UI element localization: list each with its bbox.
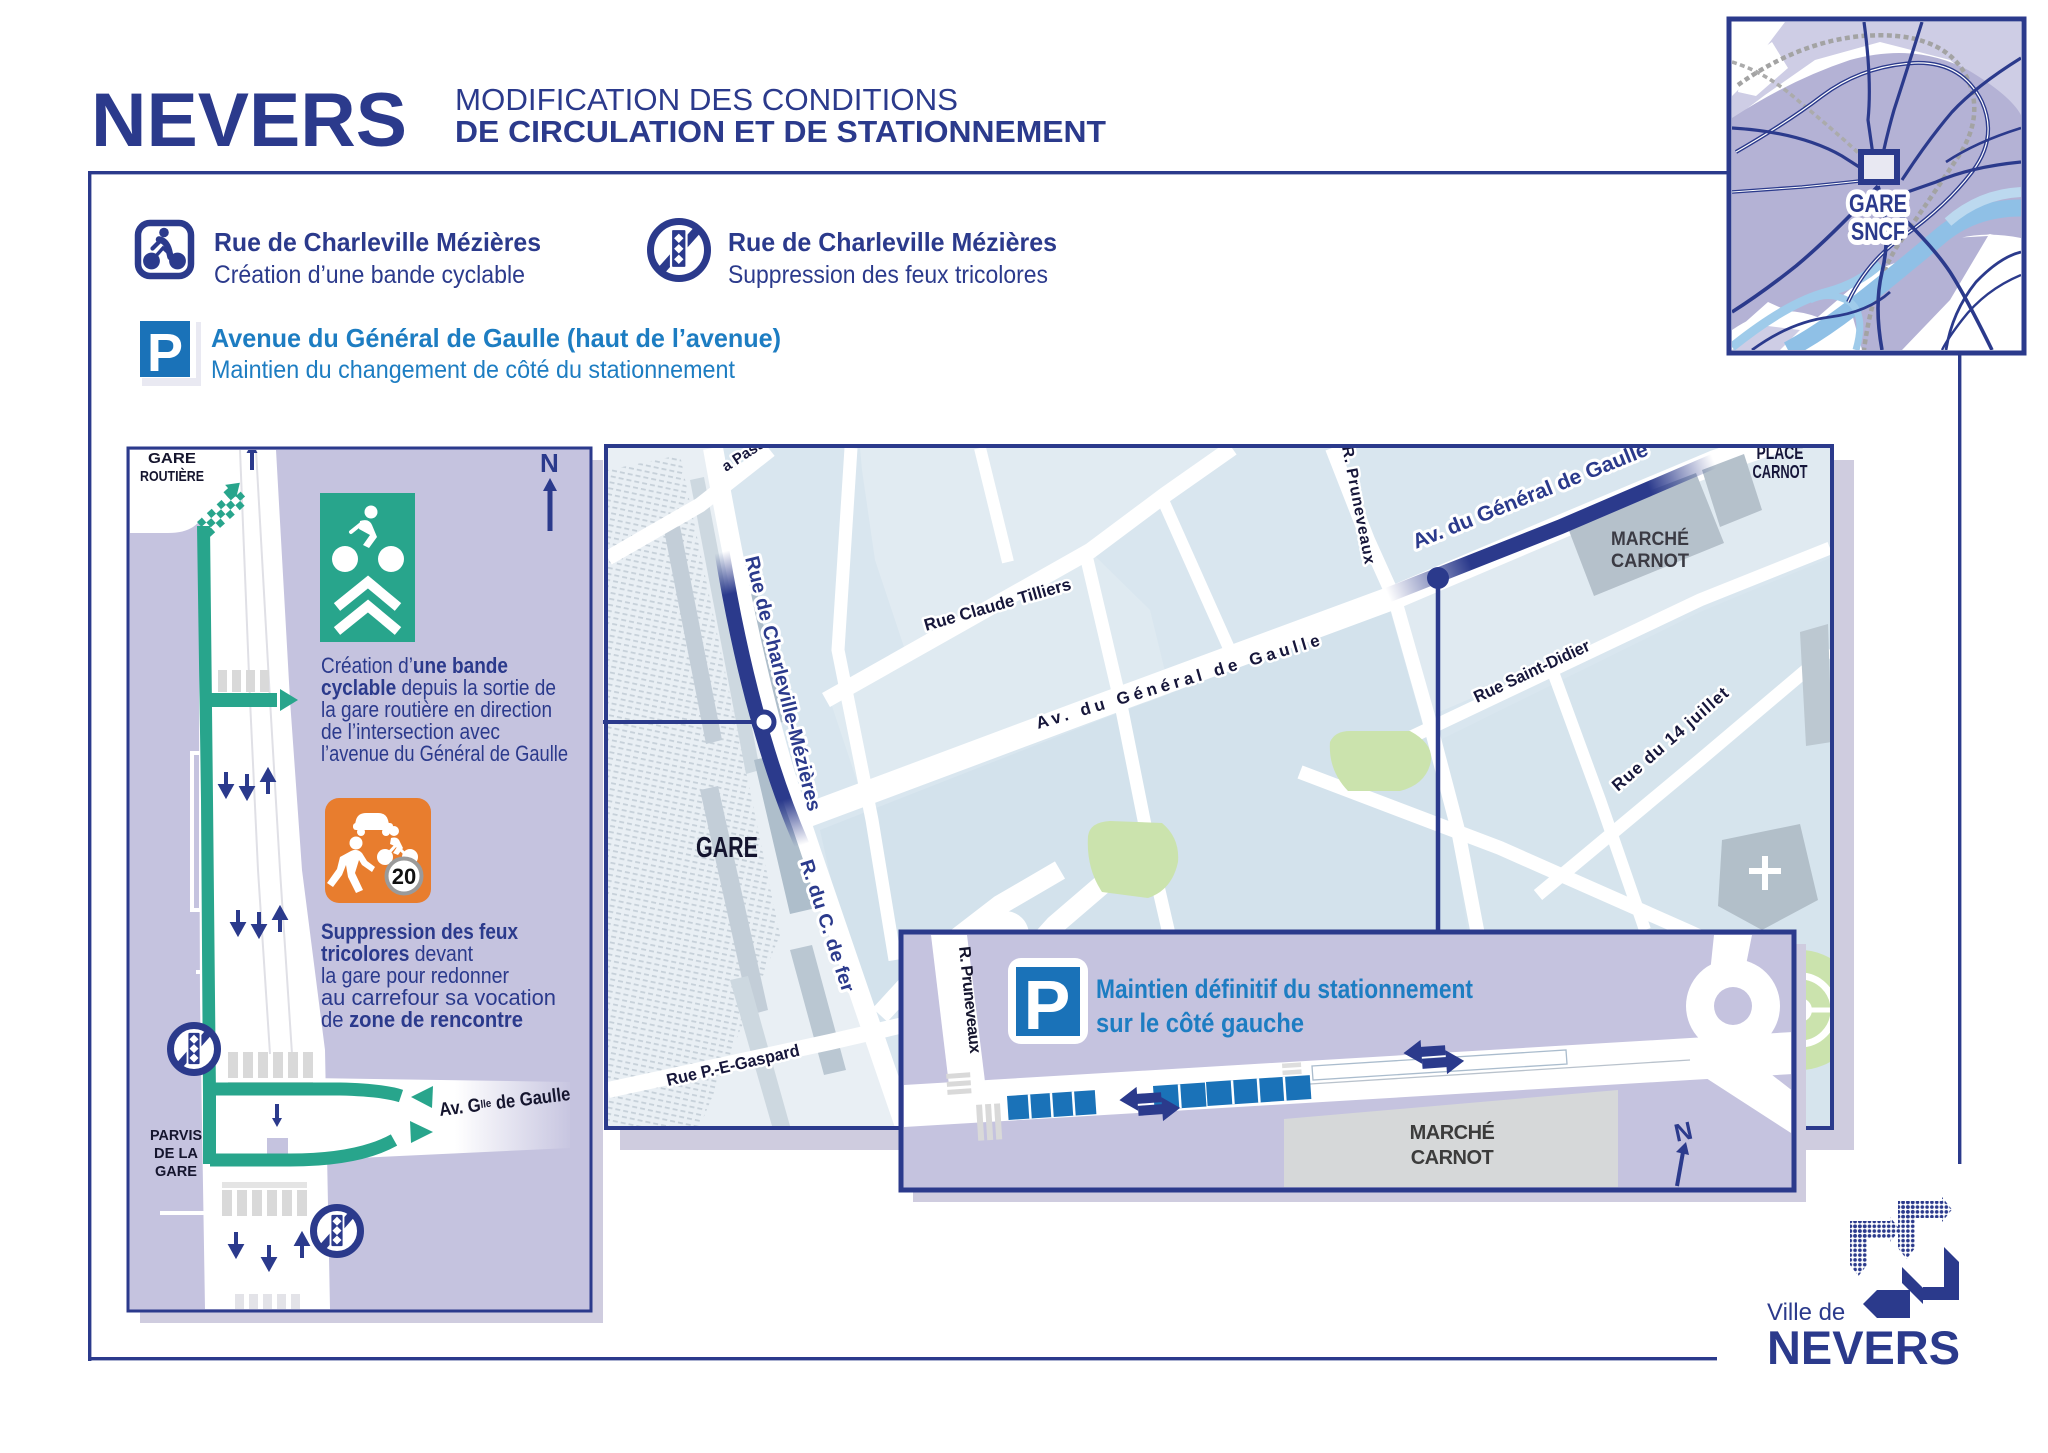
svg-text:P: P bbox=[1024, 966, 1071, 1044]
svg-text:CARNOT: CARNOT bbox=[1611, 551, 1689, 572]
svg-text:NEVERS: NEVERS bbox=[1767, 1321, 1960, 1374]
svg-text:GARE: GARE bbox=[155, 1163, 197, 1180]
svg-text:Création d’une bande cyclable: Création d’une bande cyclable bbox=[214, 261, 525, 289]
svg-text:ROUTIÈRE: ROUTIÈRE bbox=[140, 468, 204, 485]
svg-text:Maintien définitif du stationn: Maintien définitif du stationnement bbox=[1096, 974, 1473, 1004]
svg-text:Avenue du Général de Gaulle (h: Avenue du Général de Gaulle (haut de l’a… bbox=[211, 323, 781, 353]
svg-text:Rue de Charleville Mézières: Rue de Charleville Mézières bbox=[214, 227, 541, 257]
svg-text:Suppression des feux tricolore: Suppression des feux tricolores bbox=[728, 261, 1048, 289]
svg-text:de zone de rencontre: de zone de rencontre bbox=[321, 1007, 523, 1032]
svg-text:CARNOT: CARNOT bbox=[1753, 462, 1808, 482]
svg-text:sur le côté gauche: sur le côté gauche bbox=[1096, 1008, 1304, 1038]
svg-text:Maintien du changement de côté: Maintien du changement de côté du statio… bbox=[211, 356, 735, 384]
svg-text:MODIFICATION DES CONDITIONS: MODIFICATION DES CONDITIONS bbox=[455, 82, 958, 117]
svg-text:GARE: GARE bbox=[1849, 190, 1907, 218]
svg-text:CARNOT: CARNOT bbox=[1411, 1147, 1494, 1169]
svg-text:l’avenue du Général de Gaulle: l’avenue du Général de Gaulle bbox=[321, 741, 568, 766]
svg-text:MARCHÉ: MARCHÉ bbox=[1410, 1121, 1495, 1144]
svg-text:GARE: GARE bbox=[148, 450, 196, 467]
svg-text:20: 20 bbox=[392, 864, 416, 889]
svg-text:DE CIRCULATION ET DE STATIONNE: DE CIRCULATION ET DE STATIONNEMENT bbox=[455, 114, 1106, 149]
svg-text:MARCHÉ: MARCHÉ bbox=[1611, 528, 1689, 550]
svg-text:P: P bbox=[147, 323, 183, 383]
svg-text:DE LA: DE LA bbox=[154, 1145, 198, 1162]
svg-text:NEVERS: NEVERS bbox=[91, 78, 407, 163]
svg-text:SNCF: SNCF bbox=[1851, 218, 1905, 246]
svg-text:N: N bbox=[540, 448, 559, 478]
svg-text:PARVIS: PARVIS bbox=[150, 1127, 202, 1144]
svg-text:Rue de Charleville Mézières: Rue de Charleville Mézières bbox=[728, 227, 1057, 257]
svg-text:GARE: GARE bbox=[696, 832, 758, 864]
